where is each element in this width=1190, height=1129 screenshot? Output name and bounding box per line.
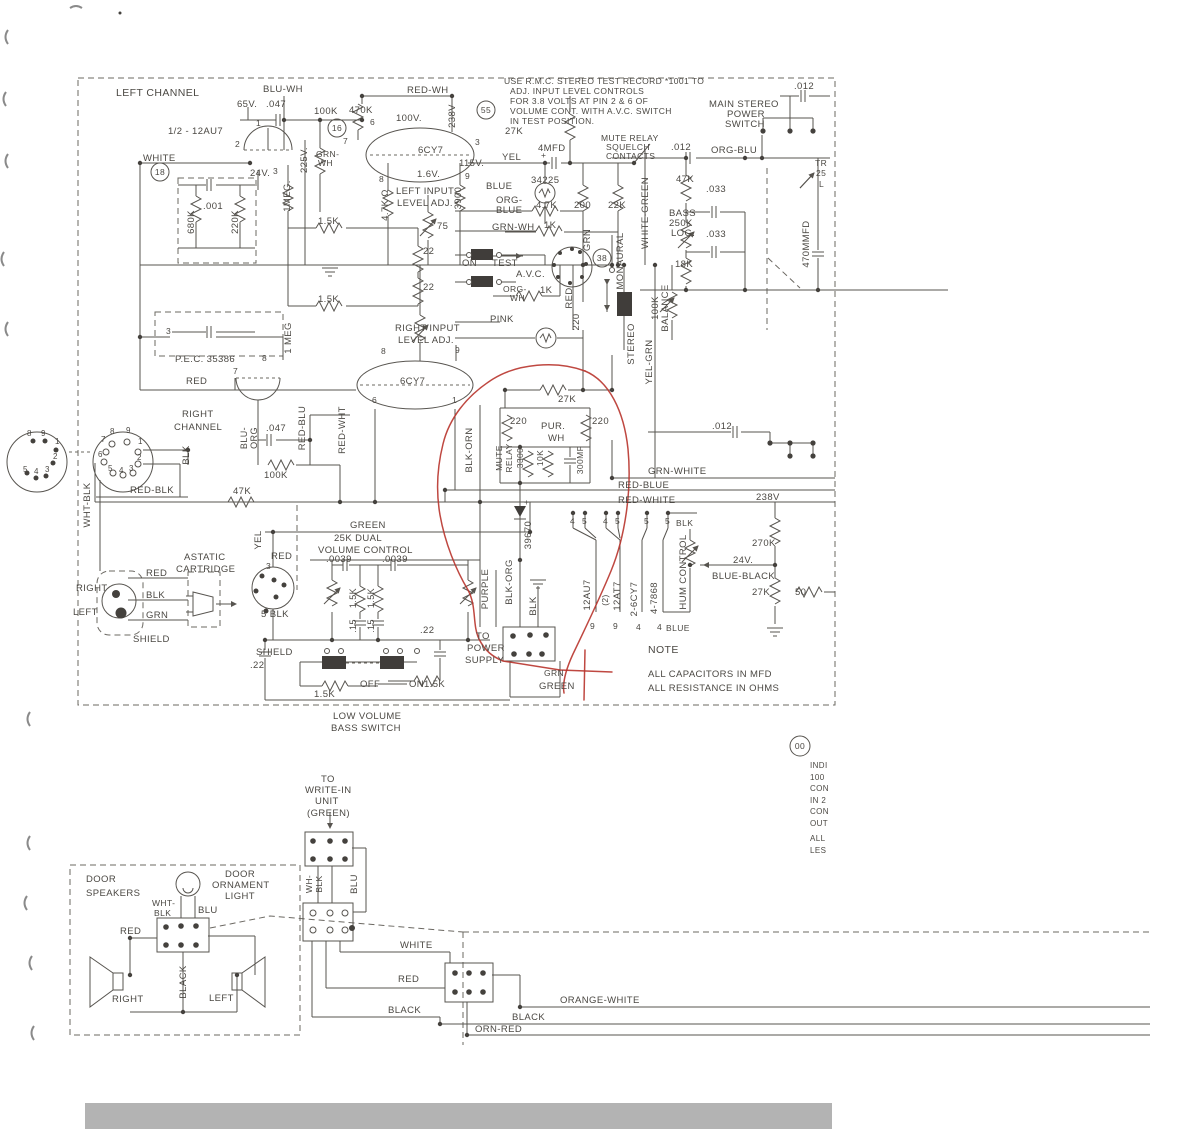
schematic-label: 4 <box>603 516 608 526</box>
schematic-label: RIGHT INPUT <box>395 323 460 334</box>
schematic-label: .047 <box>266 99 286 110</box>
schematic-label: 470MMFD <box>801 220 812 267</box>
schematic-label: SUPPLY <box>465 655 504 666</box>
schematic-label: 12AT7 <box>612 581 623 610</box>
schematic-label: TO <box>321 774 335 785</box>
tube-pec-triode <box>236 378 280 400</box>
schematic-label: RED <box>186 376 207 387</box>
schematic-label: L <box>819 179 824 189</box>
schematic-label: 4-7868 <box>649 582 660 614</box>
schematic-label: RED-WHT <box>337 406 348 454</box>
schematic-label: 47K <box>233 486 251 497</box>
schematic-label: RELAY <box>504 443 514 472</box>
schematic-label: 9 <box>455 345 460 355</box>
schematic-label: 100 <box>810 773 825 782</box>
schematic-label: YEL-GRN <box>644 339 655 384</box>
schematic-label: BLACK <box>512 1012 545 1023</box>
schematic-label: BLK <box>528 596 539 615</box>
schematic-label: 5 <box>582 516 587 526</box>
schematic-label: DOOR <box>86 874 116 885</box>
schematic-label: GRN <box>582 229 593 251</box>
schematic-label: 1.5K <box>318 216 339 227</box>
schematic-label: 225V. <box>299 147 310 173</box>
schematic-label: WHT- <box>152 898 175 908</box>
schematic-label: TEST <box>492 258 518 269</box>
schematic-label: LOG. <box>671 228 695 239</box>
schematic-label: 100K <box>264 470 288 481</box>
schematic-label: BLK <box>676 518 693 528</box>
schematic-label: BLU- <box>239 427 249 449</box>
schematic-label: .033 <box>706 229 726 240</box>
schematic-label: 2 <box>137 453 142 462</box>
schematic-label: 3 <box>475 137 480 147</box>
schematic-label: 9 <box>41 429 46 438</box>
schematic-label: TO <box>476 631 490 642</box>
schematic-label: RIGHT <box>182 409 214 420</box>
schematic-label: BLACK <box>178 965 189 998</box>
schematic-label: 4 <box>119 466 124 475</box>
schematic-label: GRN <box>544 668 564 678</box>
schematic-label: RED-WH <box>407 85 448 96</box>
schematic-label: .0039 <box>382 554 408 565</box>
schematic-label: ALL CAPACITORS IN MFD <box>648 669 772 680</box>
schematic-label: BLK <box>146 590 165 601</box>
schematic-label: .0039 <box>326 554 352 565</box>
schematic-label: 25K DUAL <box>334 533 382 544</box>
din-socket <box>252 567 294 609</box>
schematic-label: A.V.C. <box>516 269 545 280</box>
schematic-label: WHT-BLK <box>82 482 93 527</box>
schematic-label: 27K <box>752 587 770 598</box>
schematic-label: 6CY7 <box>400 376 425 387</box>
schematic-label: .22 <box>250 660 264 671</box>
schematic-label: YEL <box>253 530 264 549</box>
schematic-label: ASTATIC <box>184 552 226 563</box>
avc-switch-contact <box>471 276 493 287</box>
schematic-label: 22K <box>608 200 626 211</box>
schematic-label: ON <box>409 679 424 690</box>
schematic-label: IN 2 <box>810 796 826 805</box>
schematic-label: CONTACTS <box>606 151 655 161</box>
schematic-label: PUR. <box>541 421 565 432</box>
schematic-label: 200 <box>574 200 591 211</box>
stereo-switch <box>617 292 632 316</box>
schematic-label: BLK <box>154 908 171 918</box>
schematic-label: 2-6CY7 <box>629 582 640 617</box>
schematic-label: 27K <box>558 394 576 405</box>
schematic-label: ON <box>462 258 477 269</box>
schematic-label: RED <box>120 926 141 937</box>
schematic-label: 24V. <box>250 168 270 179</box>
schematic-label: 100K <box>314 106 338 117</box>
schematic-label: .033 <box>706 184 726 195</box>
schematic-label: WH <box>510 293 525 303</box>
schematic-label: RED <box>146 568 167 579</box>
schematic-label: MUTE <box>494 445 504 471</box>
schematic-label: 238V <box>756 492 780 503</box>
schematic-label: 4 <box>657 622 662 632</box>
schematic-label: RED <box>564 287 575 308</box>
schematic-label: 100V. <box>396 113 422 124</box>
schematic-label: 220 <box>571 313 582 330</box>
schematic-label: 10K <box>535 450 545 466</box>
door-ornament-lamp <box>176 872 200 896</box>
schematic-label: 4.7K <box>536 200 557 211</box>
schematic-label: (2) <box>600 594 610 606</box>
schematic-label: 1 <box>55 437 60 446</box>
schematic-label: 6 <box>372 395 377 405</box>
lamp-pink <box>536 328 556 348</box>
schematic-label: 8 <box>379 174 384 184</box>
schematic-label: FOR 3.8 VOLTS AT PIN 2 & 6 OF <box>510 96 648 106</box>
diode-39670 <box>514 506 526 517</box>
schematic-label: 5 <box>665 516 670 526</box>
schematic-label: 1.6V. <box>417 169 440 180</box>
schematic-label: ORN-RED <box>475 1024 522 1035</box>
circled-ref-label: 00 <box>795 741 805 751</box>
schematic-label: 34225 <box>531 175 559 186</box>
schematic-label: PURPLE <box>480 569 491 609</box>
harness-connector <box>445 963 493 1002</box>
schematic-label: LEVEL ADJ. <box>397 198 453 209</box>
schematic-label: 5 <box>615 516 620 526</box>
schematic-label: GRN <box>146 610 168 621</box>
schematic-label: 3 <box>273 166 278 176</box>
schematic-label: SWITCH <box>725 119 765 130</box>
schematic-label: ORNAMENT <box>212 880 270 891</box>
schematic-label: 5 BLK <box>261 609 289 620</box>
schematic-label: 1 <box>138 437 143 446</box>
schematic-label: 50 <box>795 587 806 598</box>
schematic-label: BASS SWITCH <box>331 723 401 734</box>
top-speck-dot <box>119 12 122 15</box>
schematic-label: SPEAKERS <box>86 888 140 899</box>
schematic-label: 6 <box>98 450 103 459</box>
schematic-label: SHIELD <box>133 634 170 645</box>
schematic-label: ORG-BLU <box>711 145 757 156</box>
schematic-label: 1.5K <box>348 588 358 608</box>
schematic-label: 220 <box>510 416 527 427</box>
schematic-label: NOTE <box>648 644 679 656</box>
circled-ref-label: 16 <box>332 123 342 133</box>
schematic-label: 3 <box>166 326 171 336</box>
schematic-label: 8 <box>262 353 267 363</box>
schematic-label: 22 <box>423 246 434 257</box>
schematic-label: 470K <box>349 105 373 116</box>
schematic-label: 4 <box>570 516 575 526</box>
schematic-label: 75 <box>437 221 448 232</box>
schematic-label: UNIT <box>315 796 339 807</box>
schematic-label: IN TEST POSITION. <box>510 116 594 126</box>
schematic-label: MONAURAL <box>615 232 626 289</box>
schematic-label: LEVEL ADJ. <box>398 335 454 346</box>
schematic-label: OFF <box>360 679 380 690</box>
schematic-label: 1.5K <box>314 689 335 700</box>
schematic-label: 25 <box>816 168 826 178</box>
schematic-label: 8 <box>110 427 115 436</box>
schematic-label: 1 <box>256 118 261 128</box>
schematic-label: VOLUME CONT. WITH A.V.C. SWITCH <box>510 106 672 116</box>
circled-ref-label: 18 <box>155 167 165 177</box>
schematic-label: INDI <box>810 761 828 770</box>
schematic-label: 5 <box>23 465 28 474</box>
schematic-label: LEFT CHANNEL <box>116 87 199 99</box>
schematic-label: SHIELD <box>256 647 293 658</box>
schematic-label: WH- <box>304 875 314 893</box>
schematic-label: WH <box>548 433 565 444</box>
bass-switch-contact <box>380 656 404 669</box>
schematic-label: GREEN <box>539 681 575 692</box>
schematic-label: .001 <box>203 201 223 212</box>
schematic-label: LIGHT <box>225 891 255 902</box>
schematic-label: 24V. <box>733 555 753 566</box>
schematic-label: RED-BLUE <box>618 480 669 491</box>
schematic-label: .012 <box>712 421 732 432</box>
schematic-label: POWER <box>467 643 505 654</box>
schematic-label: BLU <box>198 905 218 916</box>
schematic-label: LES <box>810 846 826 855</box>
schematic-label: LEFT INPUT <box>396 186 454 197</box>
write-in-connector-top <box>305 832 353 866</box>
schematic-label: RED-WHITE <box>618 495 675 506</box>
schematic-label: 65V. <box>237 99 257 110</box>
schematic-label: P.E.C. 35386 <box>175 354 235 365</box>
cartridge-symbol <box>186 592 213 616</box>
schematic-label: BLUE <box>486 181 512 192</box>
schematic-label: 680K <box>186 210 197 234</box>
schematic-label: 300MF <box>575 446 585 474</box>
schematic-label: BLK <box>181 445 192 464</box>
schematic-label: 1.5K <box>366 588 376 608</box>
schematic-label: USE R.M.C. STEREO TEST RECORD *1001 TO <box>504 76 704 86</box>
schematic-label: RED-BLK <box>130 485 174 496</box>
schematic-label: 4 <box>34 467 39 476</box>
schematic-label: HUM CONTROL <box>678 534 689 609</box>
schematic-label: BLACK <box>388 1005 421 1016</box>
schematic-label: WHITE <box>143 153 176 164</box>
schematic-label: 3300 <box>515 448 525 469</box>
schematic-label: RIGHT <box>76 583 108 594</box>
schematic-label: 7 <box>101 435 106 444</box>
schematic-label: RED <box>398 974 419 985</box>
schematic-label: RED <box>271 551 292 562</box>
schematic-label: BLUE <box>496 205 522 216</box>
schematic-label: 6CY7 <box>418 145 443 156</box>
schematic-label: YEL <box>502 152 521 163</box>
schematic-label: 5 <box>644 516 649 526</box>
schematic-label: 4.7K Ω <box>380 189 391 221</box>
schematic-label: LOW VOLUME <box>333 711 401 722</box>
schematic-label: + <box>541 150 546 160</box>
schematic-label: 115V. <box>459 158 484 169</box>
write-in-connector-bottom <box>303 903 355 941</box>
schematic-label: 22 <box>423 282 434 293</box>
schematic-label: LEFT <box>73 607 98 618</box>
schematic-label: BLK-ORN <box>464 427 475 472</box>
labels: USE R.M.C. STEREO TEST RECORD *1001 TOAD… <box>23 76 829 1035</box>
schematic-label: BLK <box>314 875 324 892</box>
schematic-label: 1K <box>540 285 553 296</box>
schematic-label: 9 <box>465 171 470 181</box>
schematic-label: BALANCE <box>660 284 671 331</box>
schematic-label: ALL <box>810 834 826 843</box>
schematic-label: GREEN <box>350 520 386 531</box>
schematic-label: 220 <box>592 416 609 427</box>
schematic-label: 238V <box>447 104 458 128</box>
schematic-label: 6 <box>370 117 375 127</box>
schematic-label: CON <box>810 784 829 793</box>
schematic-label: PINK <box>490 314 514 325</box>
schematic-label: ORANGE-WHITE <box>560 995 640 1006</box>
schematic-label: BLUE <box>666 623 690 633</box>
schematic-label: CARTRIDGE <box>176 564 235 575</box>
schematic-label: 1.5K <box>424 679 445 690</box>
schematic-label: 27K <box>505 126 523 137</box>
schematic-label: 1/2 - 12AU7 <box>168 126 223 137</box>
schematic-label: 3900 <box>453 187 464 210</box>
schematic-label: WRITE-IN <box>305 785 351 796</box>
schematic-label: 9 <box>126 426 131 435</box>
scanned-schematic-page: 1816553800 USE R.M.C. STEREO TEST RECORD… <box>0 0 1190 1129</box>
schematic-label: 1.5K <box>318 294 339 305</box>
schematic-label: 47K <box>676 174 694 185</box>
schematic-label: 7 <box>233 366 238 376</box>
schematic-label: .15 <box>366 619 376 633</box>
circled-ref-label: 38 <box>597 253 607 263</box>
schematic-label: 18K <box>675 259 693 270</box>
schematic-label: 270K <box>752 538 776 549</box>
schematic-label: RIGHT <box>112 994 144 1005</box>
schematic-drawing: 1816553800 USE R.M.C. STEREO TEST RECORD… <box>0 0 1190 1129</box>
binder-edge-marks <box>2 30 35 1040</box>
schematic-label: WHITE-GREEN <box>640 177 651 249</box>
schematic-label: WH <box>318 158 333 168</box>
schematic-label: GRN-WH <box>492 222 535 233</box>
schematic-label: 39670 <box>523 521 534 549</box>
schematic-label: 2 <box>235 139 240 149</box>
schematic-label: 1MEG. <box>282 180 293 212</box>
schematic-label: 4 <box>636 622 641 632</box>
schematic-label: 1 <box>452 395 457 405</box>
schematic-label: .047 <box>266 423 286 434</box>
schematic-label: .012 <box>671 142 691 153</box>
schematic-label: ORG <box>249 427 259 449</box>
schematic-label: .012 <box>794 81 814 92</box>
schematic-label: + <box>524 497 529 507</box>
schematic-label: BLU-WH <box>263 84 303 95</box>
top-speck <box>70 6 82 8</box>
schematic-label: BLU <box>349 874 360 894</box>
schematic-label: TR <box>815 158 827 168</box>
schematic-label: GRN-WHITE <box>648 466 706 477</box>
schematic-label: ALL RESISTANCE IN OHMS <box>648 683 779 694</box>
door-connector <box>157 918 209 952</box>
schematic-label: CON <box>810 807 829 816</box>
schematic-label: 3 <box>45 465 50 474</box>
schematic-label: 1K <box>544 220 557 231</box>
schematic-label: 8 <box>381 346 386 356</box>
schematic-label: WHITE <box>400 940 433 951</box>
schematic-label: 220K <box>230 210 241 234</box>
schematic-label: 12AU7 <box>582 579 593 610</box>
bass-switch-contact <box>322 656 346 669</box>
schematic-label: LEFT <box>209 993 234 1004</box>
schematic-label: 3 <box>129 464 134 473</box>
scan-gray-bar <box>85 1103 832 1129</box>
schematic-label: (GREEN) <box>307 808 350 819</box>
schematic-label: .15 <box>348 619 358 633</box>
schematic-label: 2 <box>53 452 58 461</box>
schematic-label: STEREO <box>626 323 637 364</box>
schematic-label: 3 <box>266 561 271 571</box>
schematic-label: 9 <box>590 621 595 631</box>
schematic-label: 1 MEG <box>283 322 294 354</box>
schematic-label: OUT <box>810 819 828 828</box>
schematic-label: RED-BLU <box>297 406 308 451</box>
schematic-label: 7 <box>343 136 348 146</box>
schematic-label: BLUE-BLACK <box>712 571 775 582</box>
schematic-label: CHANNEL <box>174 422 222 433</box>
schematic-label: 9 <box>613 621 618 631</box>
schematic-label: DOOR <box>225 869 255 880</box>
schematic-label: 5 <box>108 464 113 473</box>
power-supply-connector <box>503 627 555 661</box>
schematic-label: 8 <box>27 429 32 438</box>
circled-ref-label: 55 <box>481 105 491 115</box>
schematic-label: ADJ. INPUT LEVEL CONTROLS <box>510 86 644 96</box>
schematic-label: BLK-ORG <box>504 559 515 605</box>
schematic-label: .22 <box>420 625 434 636</box>
